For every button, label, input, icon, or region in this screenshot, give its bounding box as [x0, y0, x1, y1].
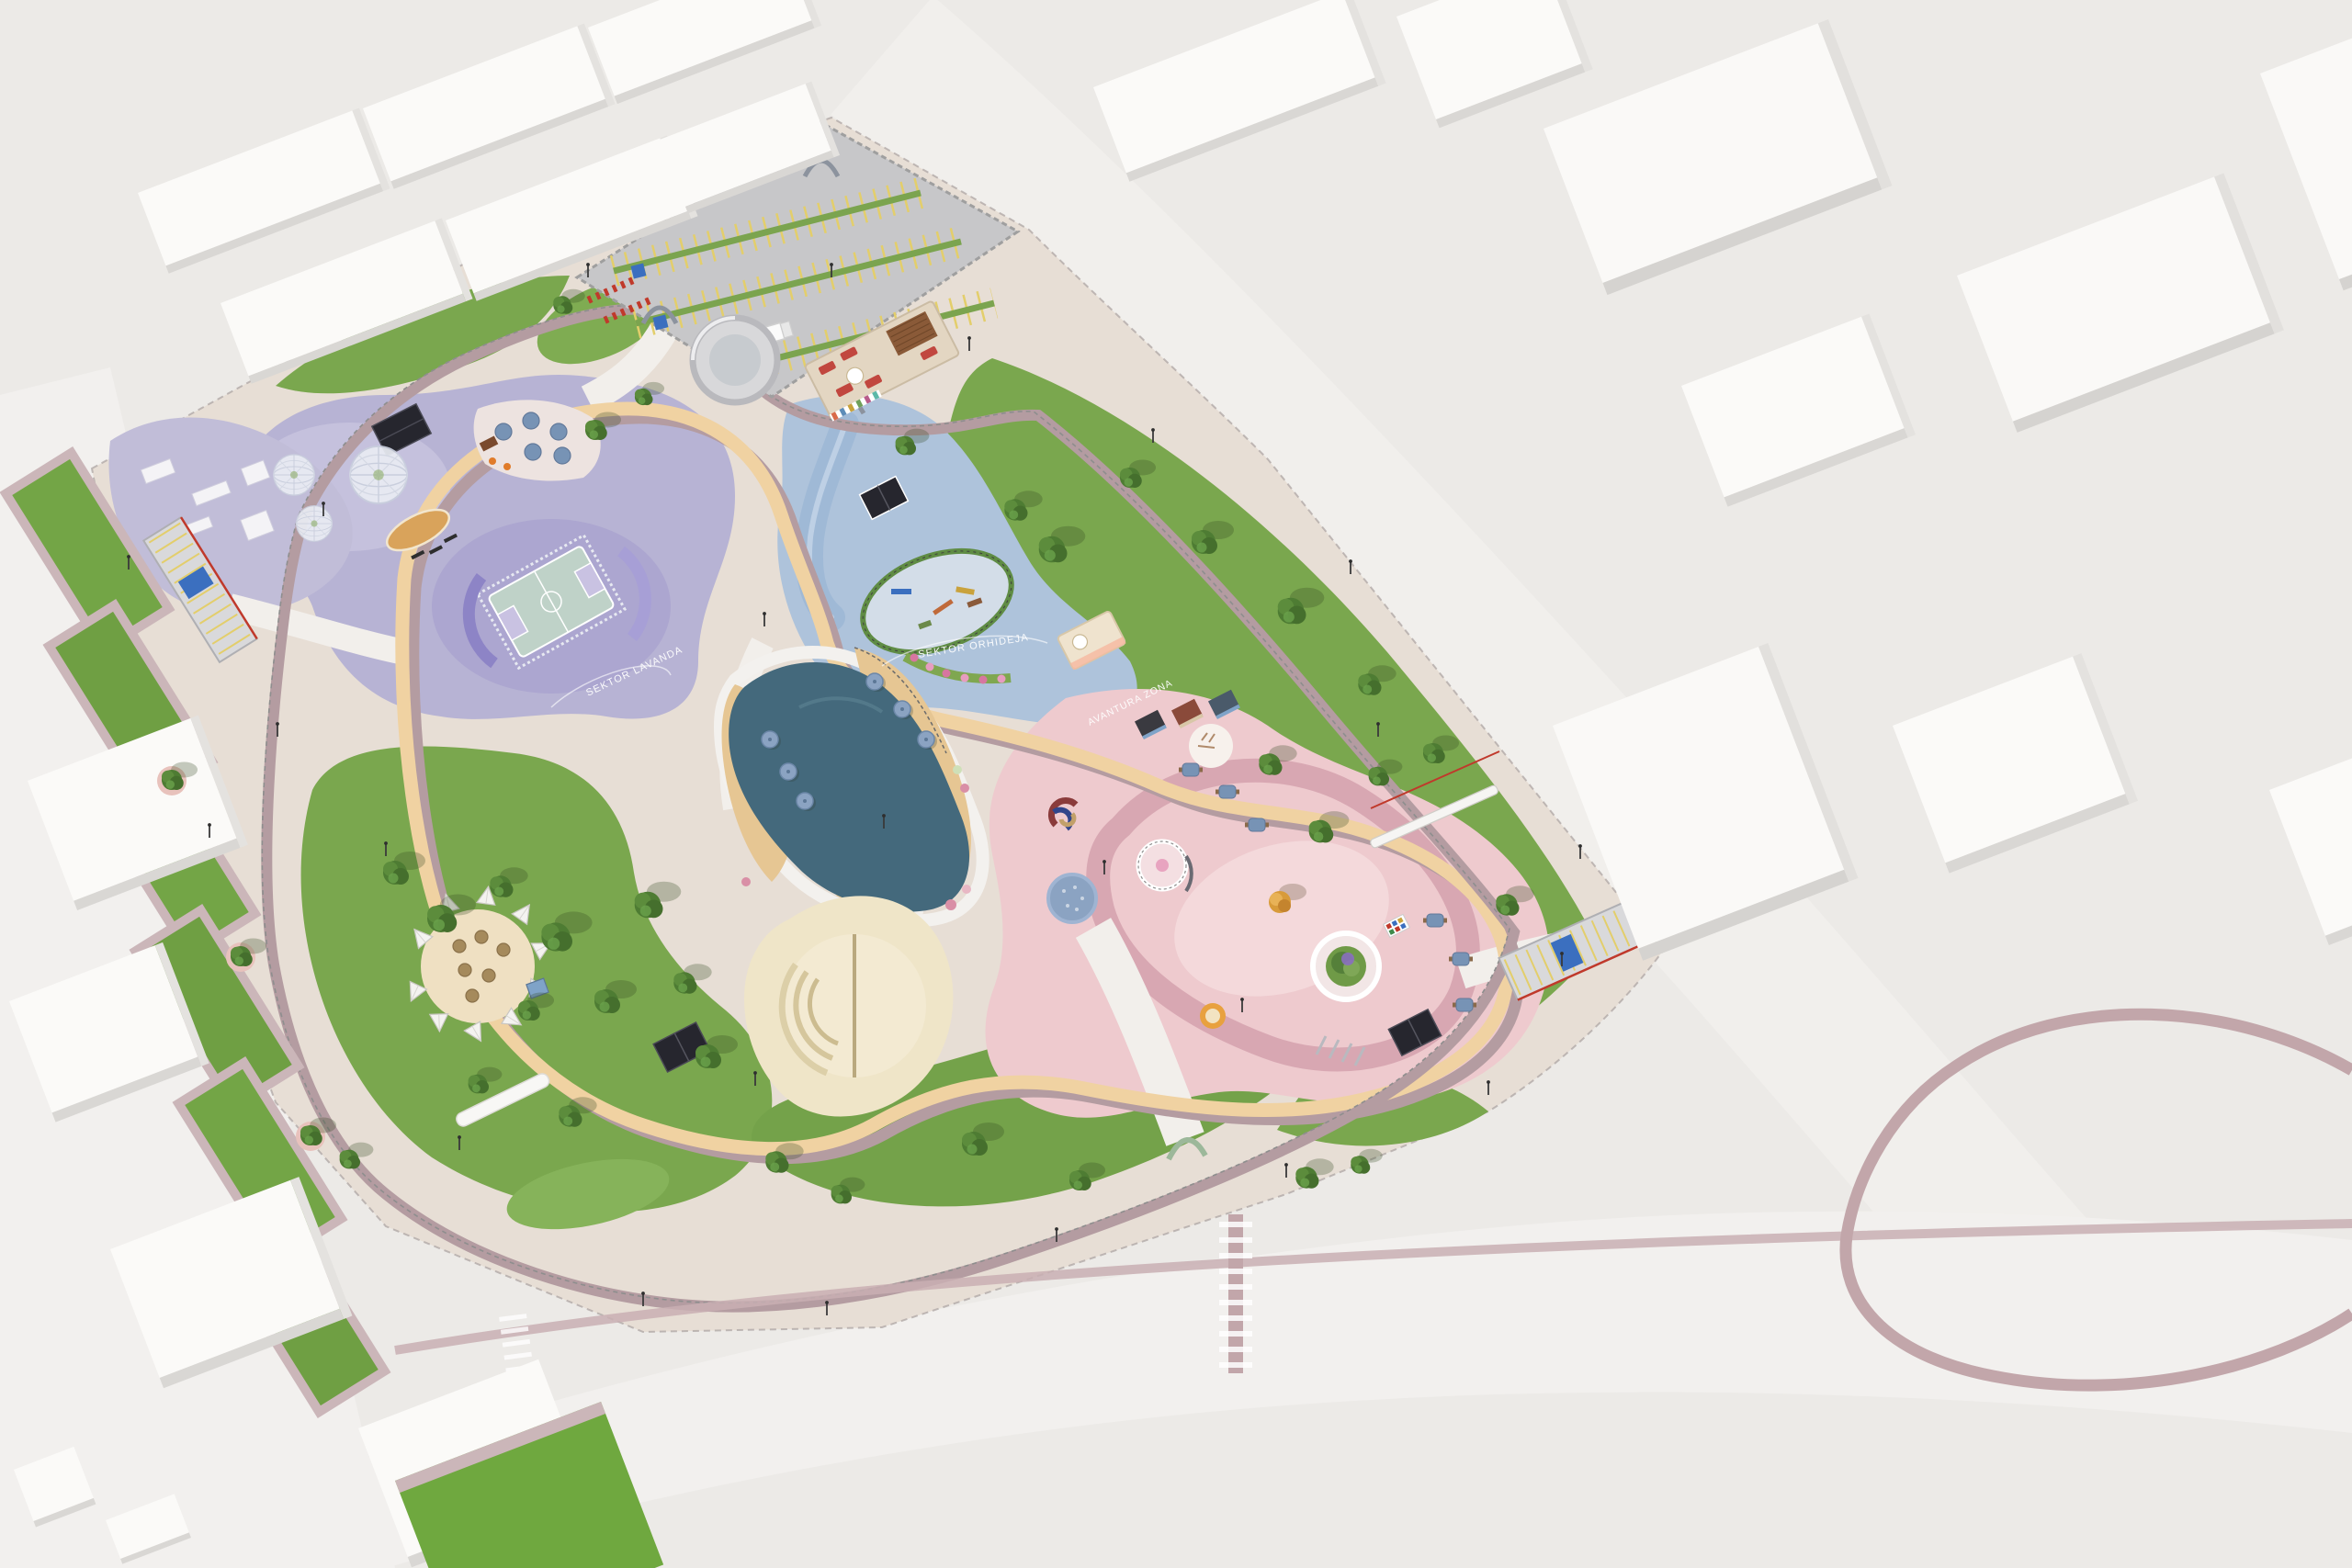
geodesic-dome: [297, 506, 333, 542]
geodesic-dome: [350, 446, 407, 503]
geodesic-dome: [274, 455, 314, 495]
sandbox: [1200, 1003, 1226, 1029]
mosaic-plaza: [1189, 724, 1233, 768]
masterplan-canvas: SEKTOR LAVANDA SEKTOR ORHIDEJA AVANTURA …: [0, 0, 2352, 1568]
tree-planter-circle: [1313, 933, 1379, 999]
water-mirror-mosaic: [1048, 874, 1096, 922]
masterplan-render: SEKTOR LAVANDA SEKTOR ORHIDEJA AVANTURA …: [0, 0, 2352, 1568]
fountain: [693, 318, 777, 402]
